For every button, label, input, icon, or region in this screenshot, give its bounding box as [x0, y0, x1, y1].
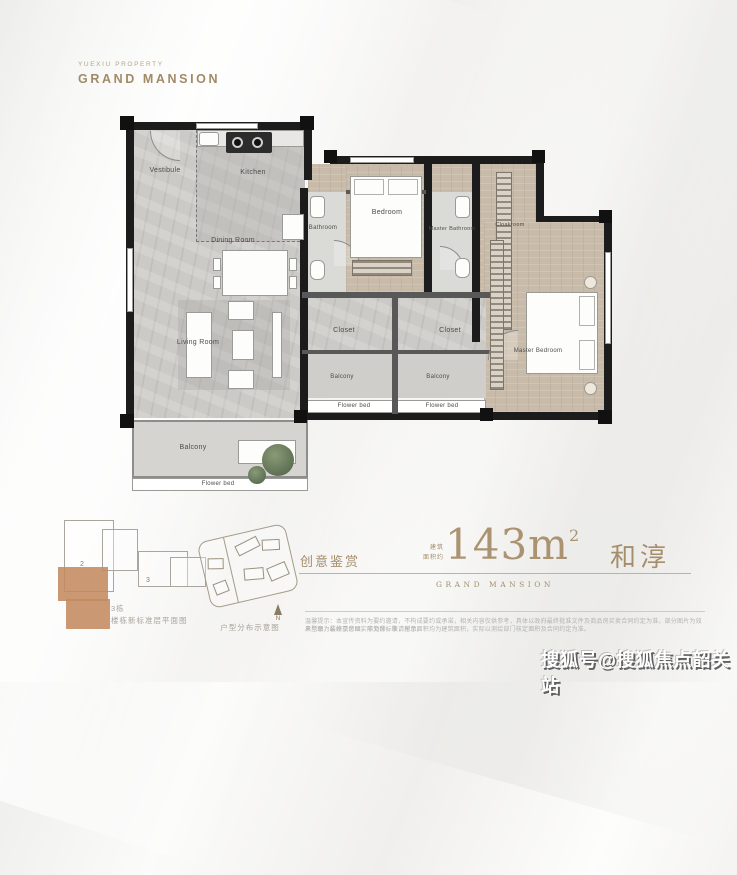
- kitchen-sink: [199, 132, 219, 146]
- room-label-living: Living Room: [170, 339, 226, 346]
- area-value-block: 143m2: [445, 520, 579, 569]
- dining-table: [222, 250, 288, 296]
- window: [127, 248, 133, 312]
- divider-line: [299, 573, 691, 574]
- key-plan: 2 3 3栋 楼栋新标准层平面图: [50, 515, 195, 640]
- site-diagram: N 户型分布示意图: [195, 522, 305, 637]
- armchair: [228, 301, 254, 320]
- site-caption: 户型分布示意图: [203, 622, 297, 633]
- room-label-flowerbed-main: Flower bed: [190, 481, 246, 487]
- room-label-balcony-main: Balcony: [168, 444, 218, 451]
- room-label-kitchen: Kitchen: [228, 169, 278, 176]
- column: [599, 210, 612, 223]
- room-label-bedroom: Bedroom: [362, 209, 412, 216]
- info-left-title: 创意鉴赏: [300, 551, 360, 570]
- room-label-dining: Dining Room: [205, 237, 261, 244]
- room-label-closet-right: Closet: [428, 327, 472, 334]
- watermark: 搜狐号@搜狐焦点韶关站: [541, 646, 737, 698]
- area-sup: 2: [569, 526, 579, 545]
- area-value: 143m: [445, 520, 569, 569]
- floor-plan: Vestibule Kitchen Dining Room Living Roo…: [0, 0, 737, 520]
- dining-chair: [213, 276, 221, 289]
- column: [120, 414, 134, 428]
- wall-segment: [536, 156, 544, 222]
- master-bed: [526, 292, 598, 374]
- room-label-flowerbed-right: Flower bed: [414, 403, 470, 409]
- room-label-closet-left: Closet: [322, 327, 366, 334]
- area-prefix-bottom: 面积约: [423, 552, 444, 561]
- room-label-flowerbed-left: Flower bed: [326, 403, 382, 409]
- partition: [392, 294, 398, 414]
- column: [598, 410, 612, 424]
- nightstand: [584, 382, 597, 395]
- floor-closet-left: [306, 298, 392, 352]
- column: [120, 116, 134, 130]
- divider-line-2: [305, 611, 705, 612]
- area-prefix: 建筑 面积约: [423, 542, 444, 561]
- room-label-bathroom: Bathroom: [300, 225, 346, 231]
- keyplan-caption-line1: 3栋: [111, 603, 125, 614]
- column: [324, 150, 337, 163]
- wall-segment: [486, 412, 612, 420]
- sink: [455, 196, 470, 218]
- room-label-balcony-left: Balcony: [320, 374, 364, 380]
- column: [294, 410, 307, 423]
- site-outline: [197, 523, 300, 610]
- column: [300, 116, 314, 130]
- sink: [310, 196, 325, 218]
- nightstand: [584, 276, 597, 289]
- window: [605, 252, 611, 344]
- dining-chair: [289, 258, 297, 271]
- keyplan-unit-highlight: [58, 567, 108, 601]
- master-dresser: [490, 240, 504, 390]
- room-label-master-bedroom: Master Bedroom: [506, 348, 570, 354]
- disclaimer-line-2: 户型图为装修示意图，非交付标准，所示面积均为建筑面积，实际以测绘部门核定面积及合…: [305, 626, 707, 634]
- column: [532, 150, 545, 163]
- plant: [248, 466, 266, 484]
- toilet: [455, 258, 470, 278]
- window: [350, 157, 414, 163]
- room-label-balcony-right: Balcony: [416, 374, 460, 380]
- keyplan-caption-line2: 楼栋新标准层平面图: [111, 615, 188, 626]
- compass-needle-icon: [274, 604, 282, 615]
- stove-icon: [226, 132, 272, 153]
- keyplan-unit-2: 2: [80, 561, 84, 568]
- tv-console: [272, 312, 282, 378]
- toilet: [310, 260, 325, 280]
- compass-label: N: [271, 615, 285, 622]
- room-label-master-bathroom: Master Bathroom: [426, 226, 478, 232]
- series-name: GRAND MANSION: [400, 580, 590, 589]
- room-label-cloakroom: Cloakroom: [488, 222, 532, 228]
- armchair: [228, 370, 254, 389]
- keyplan-unit-3: 3: [146, 577, 150, 584]
- keyplan-outline: [102, 529, 138, 571]
- keyplan-unit-highlight: [66, 599, 110, 629]
- room-label-vestibule: Vestibule: [140, 167, 190, 174]
- unit-name: 和淳: [610, 537, 670, 574]
- area-prefix-top: 建筑: [423, 542, 444, 551]
- plant: [262, 444, 294, 476]
- info-bar: 创意鉴赏 建筑 面积约 143m2 和淳 GRAND MANSION 温馨提示：…: [295, 525, 715, 645]
- bed: [350, 176, 422, 258]
- window: [196, 123, 258, 129]
- coffee-table: [232, 330, 254, 360]
- dining-chair: [213, 258, 221, 271]
- dresser: [352, 260, 412, 276]
- wall-segment: [300, 413, 492, 420]
- wall-segment: [304, 122, 312, 180]
- column: [480, 408, 493, 421]
- dining-chair: [289, 276, 297, 289]
- wall-segment: [472, 164, 480, 342]
